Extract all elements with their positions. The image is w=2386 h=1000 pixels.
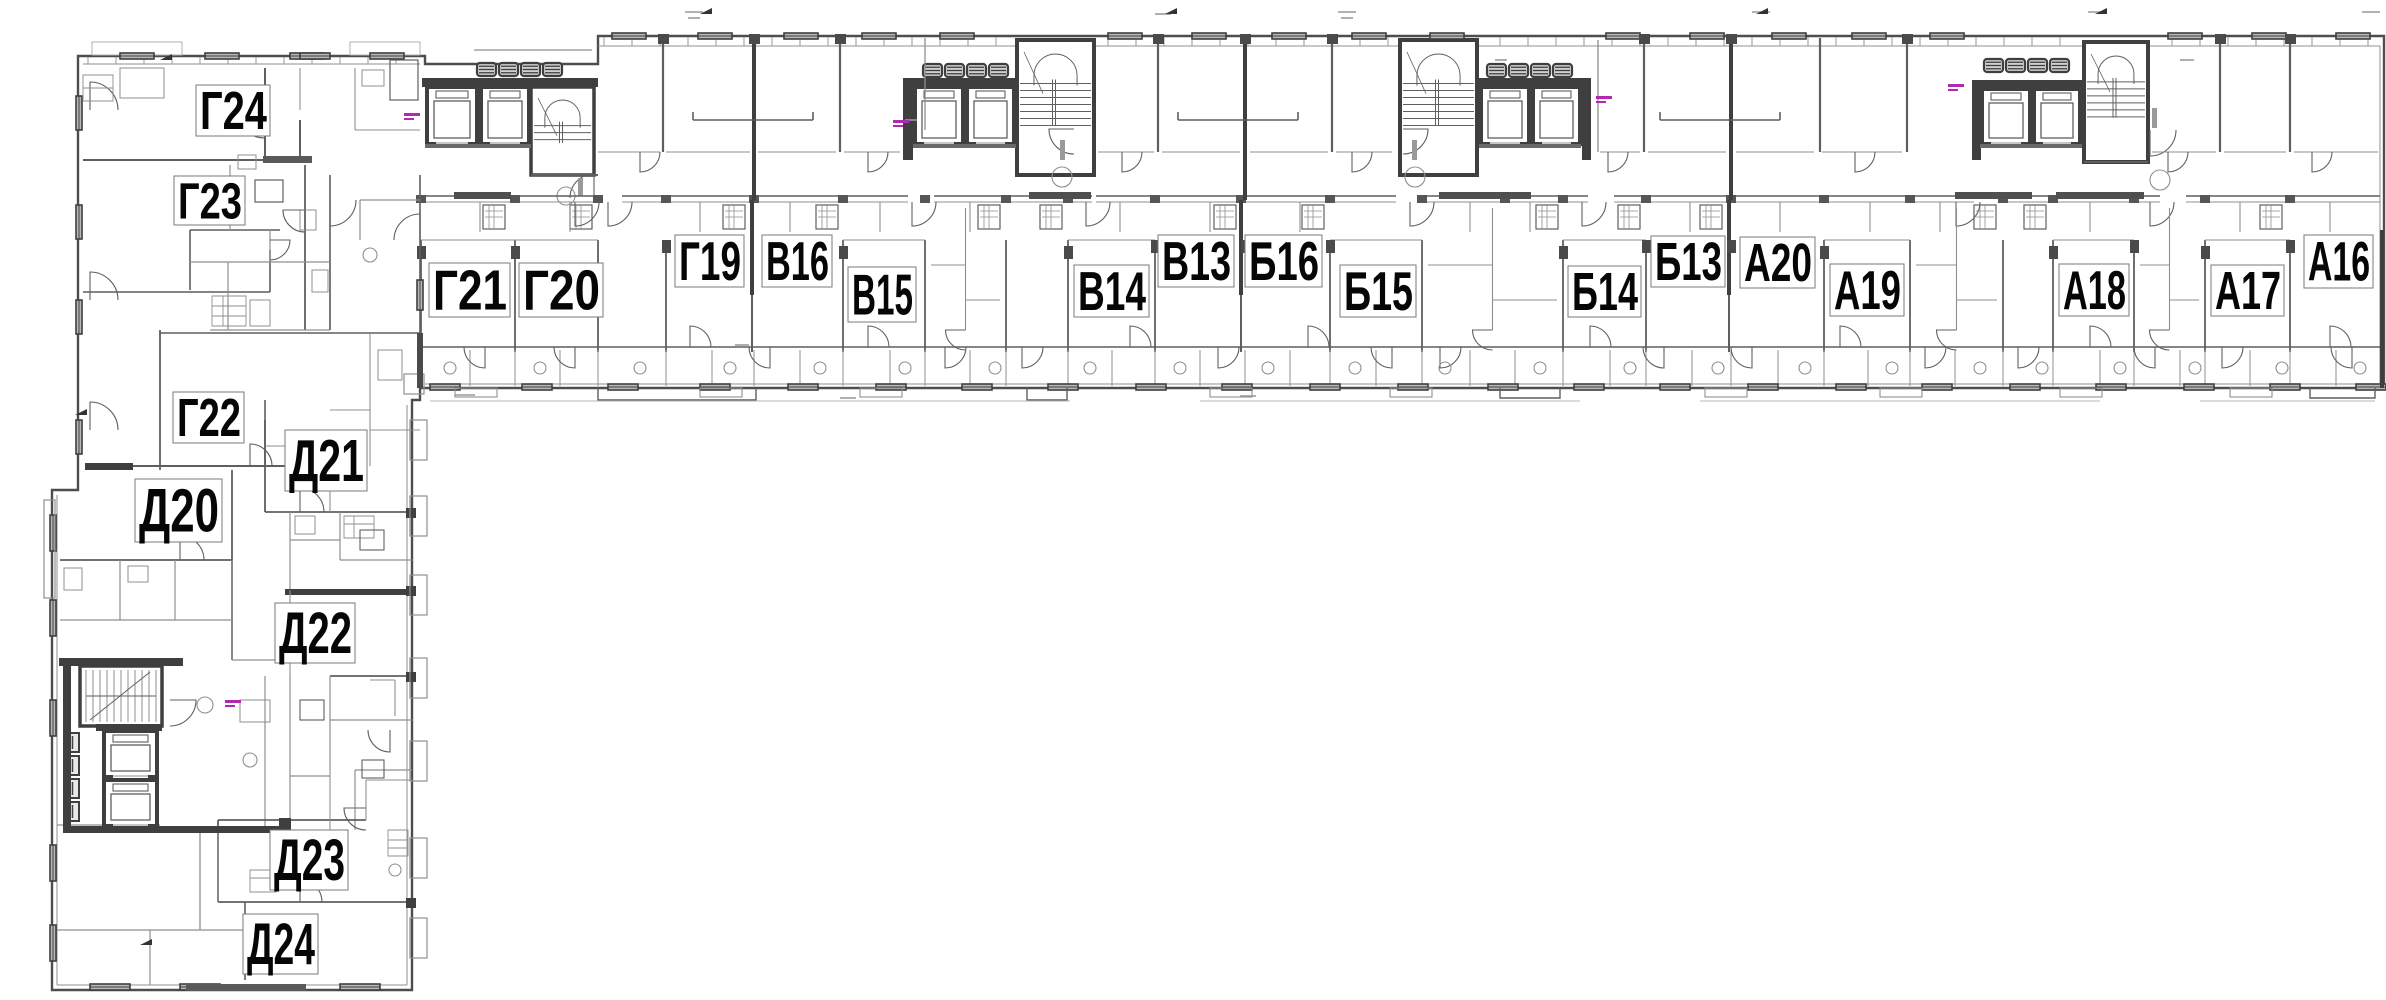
- svg-text:Г20: Г20: [523, 260, 600, 323]
- svg-text:Б14: Б14: [1572, 263, 1638, 322]
- svg-text:Б16: Б16: [1249, 231, 1319, 292]
- svg-text:Г24: Г24: [200, 82, 267, 141]
- svg-text:Д24: Д24: [247, 912, 315, 977]
- svg-text:Г23: Г23: [178, 171, 242, 229]
- svg-text:А19: А19: [1834, 260, 1901, 321]
- svg-text:Д21: Д21: [289, 427, 364, 494]
- svg-text:А18: А18: [2063, 260, 2126, 321]
- svg-text:Б13: Б13: [1655, 233, 1722, 292]
- svg-text:А16: А16: [2308, 231, 2370, 293]
- svg-text:Д23: Д23: [274, 828, 345, 893]
- svg-text:В16: В16: [766, 231, 829, 292]
- svg-text:Д22: Д22: [279, 601, 352, 666]
- svg-text:А17: А17: [2215, 262, 2281, 321]
- svg-text:Б15: Б15: [1344, 261, 1413, 322]
- svg-text:В15: В15: [852, 263, 913, 327]
- svg-text:Г19: Г19: [679, 231, 741, 292]
- svg-text:Г22: Г22: [177, 389, 241, 448]
- svg-text:В13: В13: [1162, 231, 1231, 292]
- svg-text:Г21: Г21: [433, 260, 507, 323]
- svg-text:Д20: Д20: [139, 477, 219, 545]
- svg-text:В14: В14: [1078, 261, 1146, 322]
- svg-text:А20: А20: [1744, 234, 1812, 293]
